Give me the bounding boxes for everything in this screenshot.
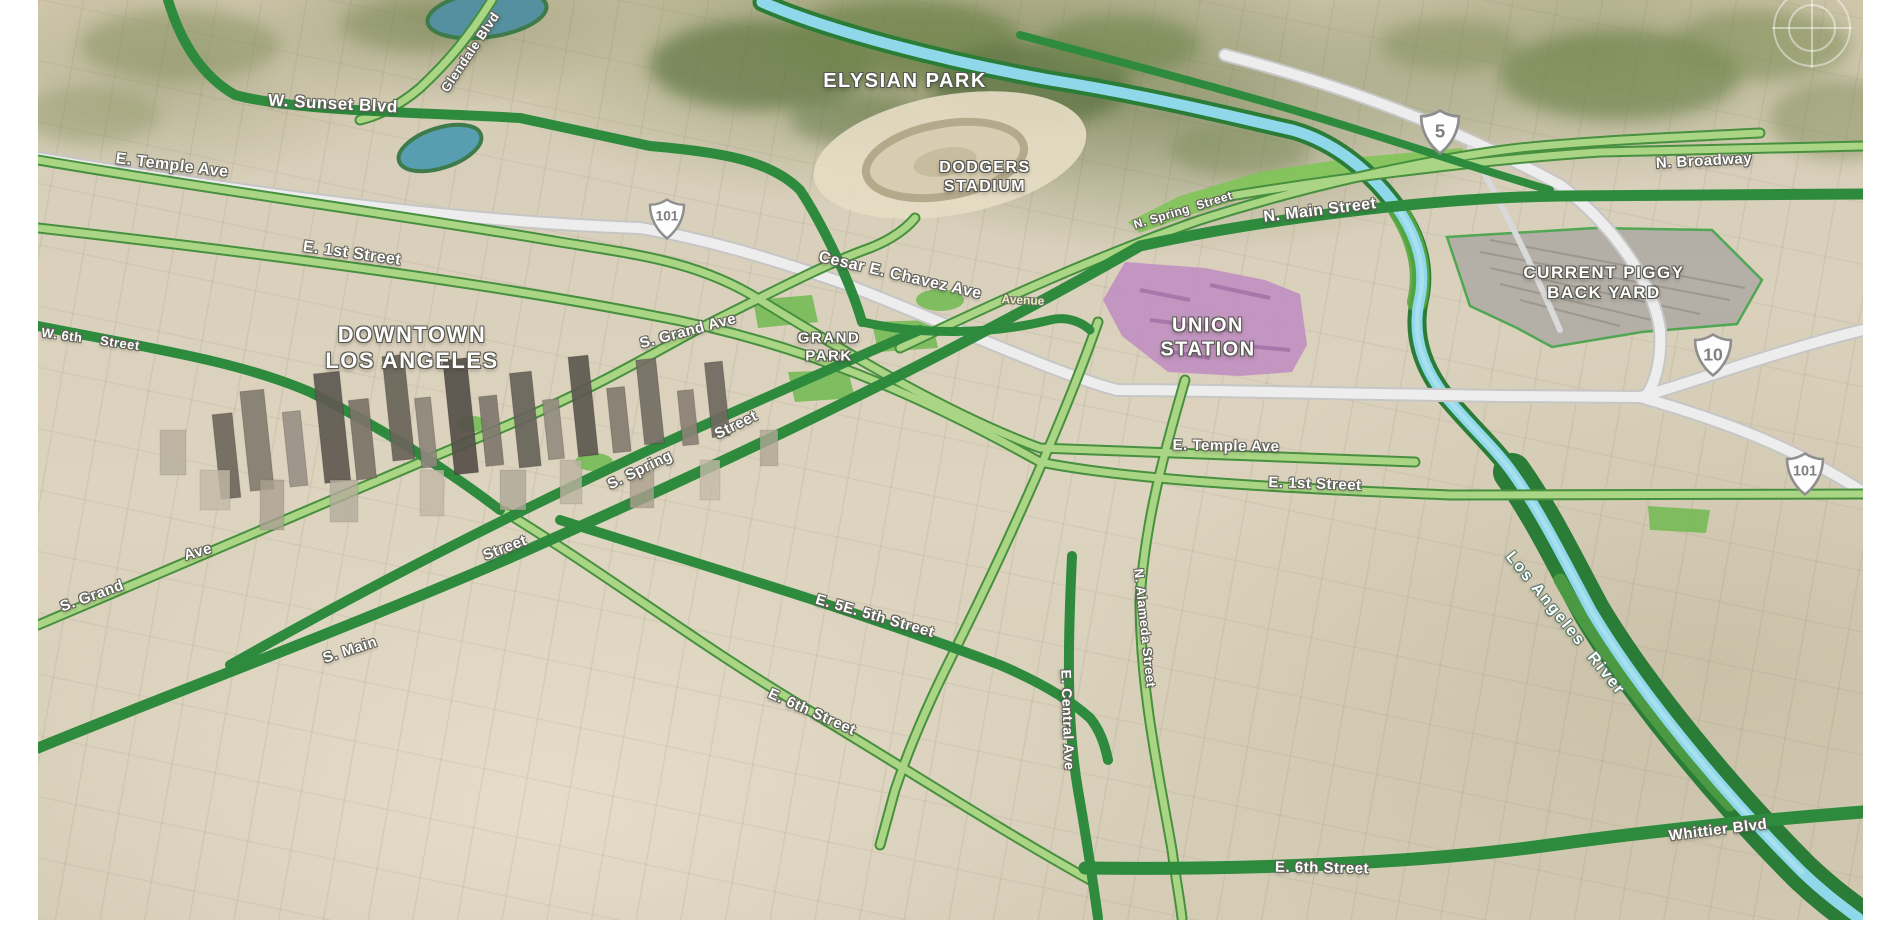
map-terrain: [38, 0, 1863, 920]
aerial-map-view: ELYSIAN PARKDODGERSSTADIUMDOWNTOWNLOS AN…: [0, 0, 1900, 927]
piggy-back-yard-area: [1447, 228, 1762, 347]
union-station-area: [1103, 262, 1307, 376]
map-graphics: [38, 0, 1863, 920]
